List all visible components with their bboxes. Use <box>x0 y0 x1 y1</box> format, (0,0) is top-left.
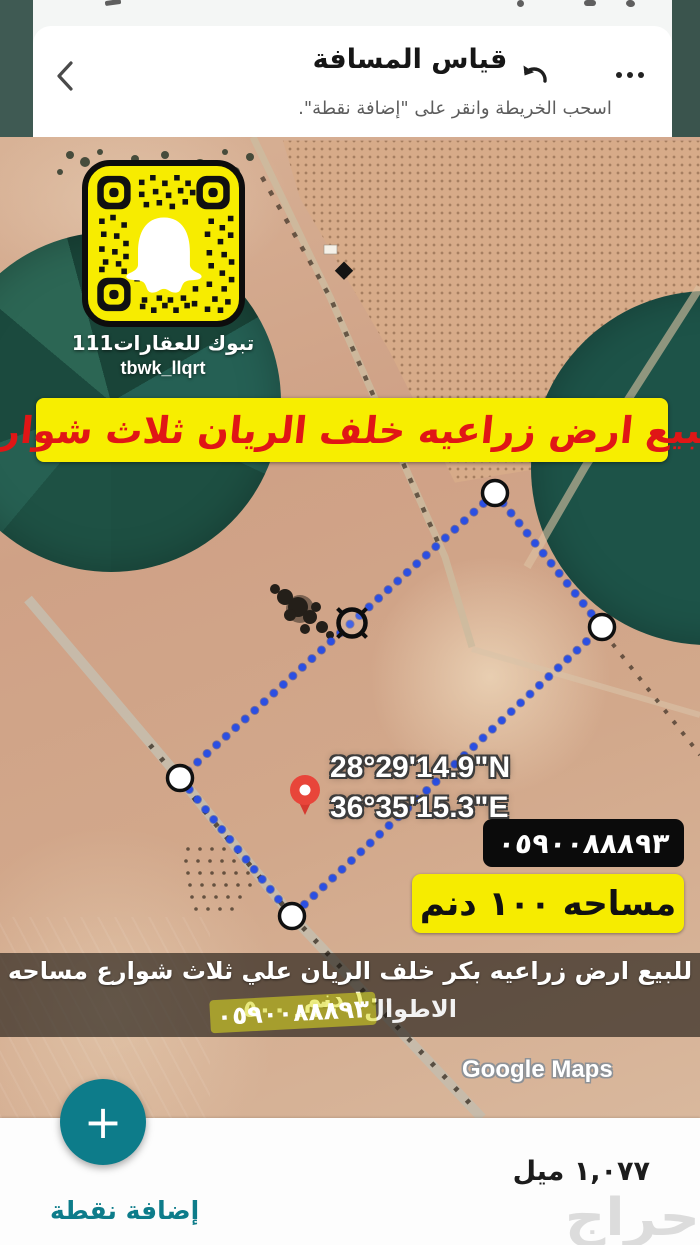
building <box>324 245 337 254</box>
header-card <box>33 26 672 137</box>
phone-badge: ٠٥٩٠٠٨٨٨٩٣ <box>483 819 684 867</box>
menu-dot-icon <box>616 72 622 78</box>
google-maps-watermark: Google Maps <box>462 1056 613 1084</box>
phone-badge-text: ٠٥٩٠٠٨٨٨٩٣ <box>496 827 670 860</box>
measure-vertex <box>590 615 615 640</box>
cropped-text-fragment <box>625 0 635 8</box>
chevron-left-icon <box>52 59 78 93</box>
haraj-watermark: حراج <box>484 1188 700 1245</box>
add-point-button[interactable]: إضافة نقطة <box>50 1196 199 1225</box>
sale-banner: للبيع ارض زراعيه خلف الريان ثلاث شوارع <box>36 398 668 462</box>
coordinates-latitude: 28°29'14.9"N <box>330 748 510 788</box>
phone-highlight-text: ٠٥٩٠٠٨٨٨٩٣ <box>216 994 370 1031</box>
menu-dot-icon <box>638 72 644 78</box>
dirt-track <box>253 137 472 647</box>
coordinates-label: 28°29'14.9"N 36°35'15.3"E <box>330 748 510 828</box>
frame-bar-left <box>0 0 33 137</box>
pond <box>335 262 353 280</box>
screen: قياس المسافة اسحب الخريطة وانقر على "إضا… <box>0 0 700 1245</box>
distance-label: ١,٠٧٧ ميل <box>430 1156 650 1187</box>
page-subtitle: اسحب الخريطة وانقر على "إضافة نقطة". <box>245 98 665 119</box>
page-title: قياس المسافة <box>290 44 530 75</box>
dark-ground-patch <box>270 584 334 639</box>
area-badge: مساحه ١٠٠ دنم <box>412 874 684 933</box>
dirt-track <box>472 649 700 715</box>
snapcode-pattern <box>88 166 239 321</box>
measure-target-icon <box>338 609 367 638</box>
measure-vertex <box>168 766 193 791</box>
map-pin-icon <box>290 775 320 815</box>
snapcode <box>82 160 245 327</box>
sale-banner-text: للبيع ارض زراعيه خلف الريان ثلاث شوارع <box>0 409 700 452</box>
undo-icon <box>517 59 551 89</box>
plus-icon: + <box>84 1099 123 1145</box>
cropped-text-fragment <box>105 0 122 6</box>
fab-add-button[interactable]: + <box>60 1079 146 1165</box>
back-button[interactable] <box>48 56 82 96</box>
coordinates-longitude: 36°35'15.3"E <box>330 788 510 828</box>
cropped-text-fragment <box>517 0 524 7</box>
frame-bar-right <box>672 0 700 137</box>
measure-vertex <box>483 481 508 506</box>
road <box>28 599 482 1118</box>
undo-button[interactable] <box>514 56 554 92</box>
area-badge-text: مساحه ١٠٠ دنم <box>420 884 676 924</box>
menu-dot-icon <box>627 72 633 78</box>
measure-vertex <box>280 904 305 929</box>
cropped-text-fragment <box>584 0 596 6</box>
snapcode-username: tbwk_llqrt <box>40 358 286 379</box>
snapcode-title: تبوك للعقارات111 <box>40 331 286 355</box>
overflow-menu-button[interactable] <box>606 62 654 88</box>
